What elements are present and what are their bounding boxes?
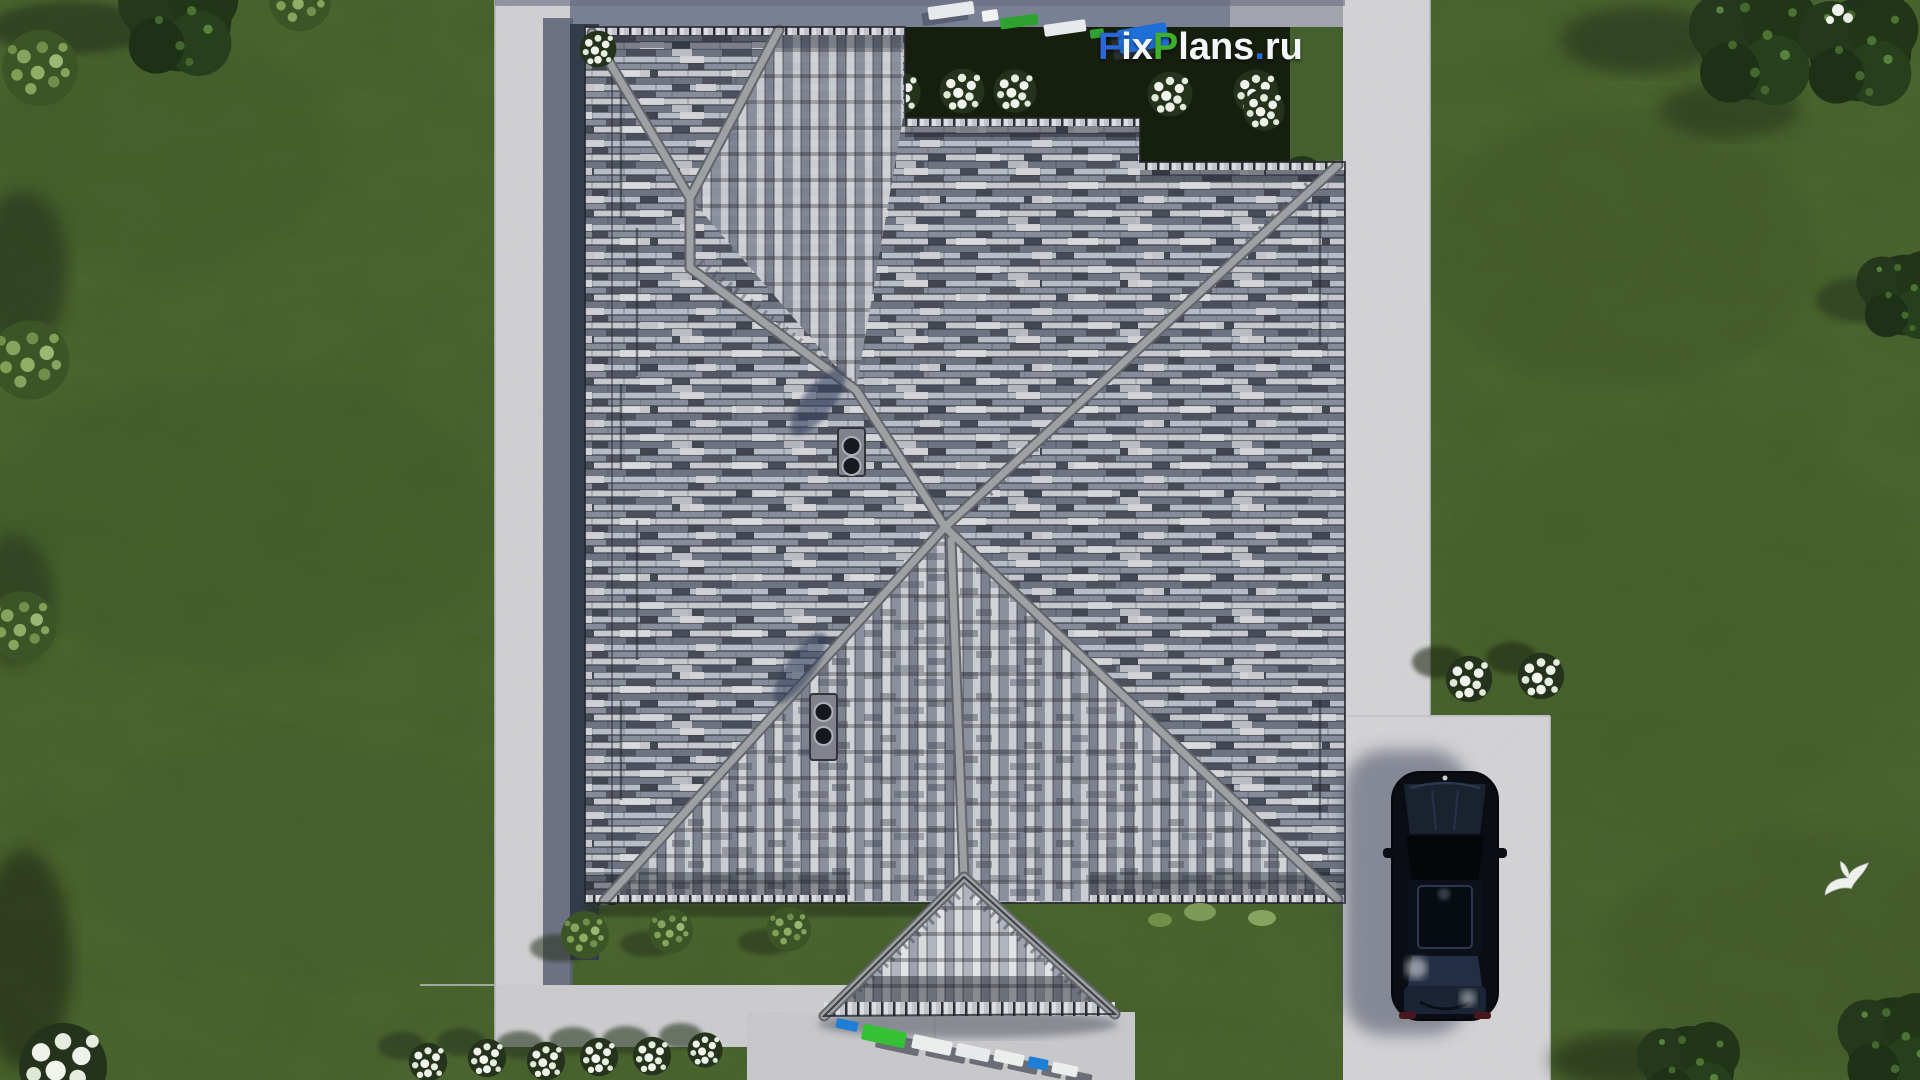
windshield (1406, 836, 1484, 880)
watermark-segment: . (1254, 26, 1265, 68)
watermark-segment: P (1153, 26, 1178, 68)
tree (118, 0, 238, 76)
mirror-left (1383, 848, 1396, 858)
fixplans-watermark: FixPlans.ru (1098, 26, 1303, 69)
watermark-segment: ru (1265, 26, 1303, 68)
scene (0, 0, 1920, 1080)
watermark-segment: F (1098, 26, 1121, 68)
bush (2, 30, 78, 106)
watermark-segment: lans (1178, 26, 1254, 68)
mirror-right (1494, 848, 1507, 858)
render-viewport: FixPlans.ru (0, 0, 1920, 1080)
eave-shadow (585, 903, 935, 917)
car (1344, 750, 1507, 1035)
watermark-segment: ix (1121, 26, 1153, 68)
